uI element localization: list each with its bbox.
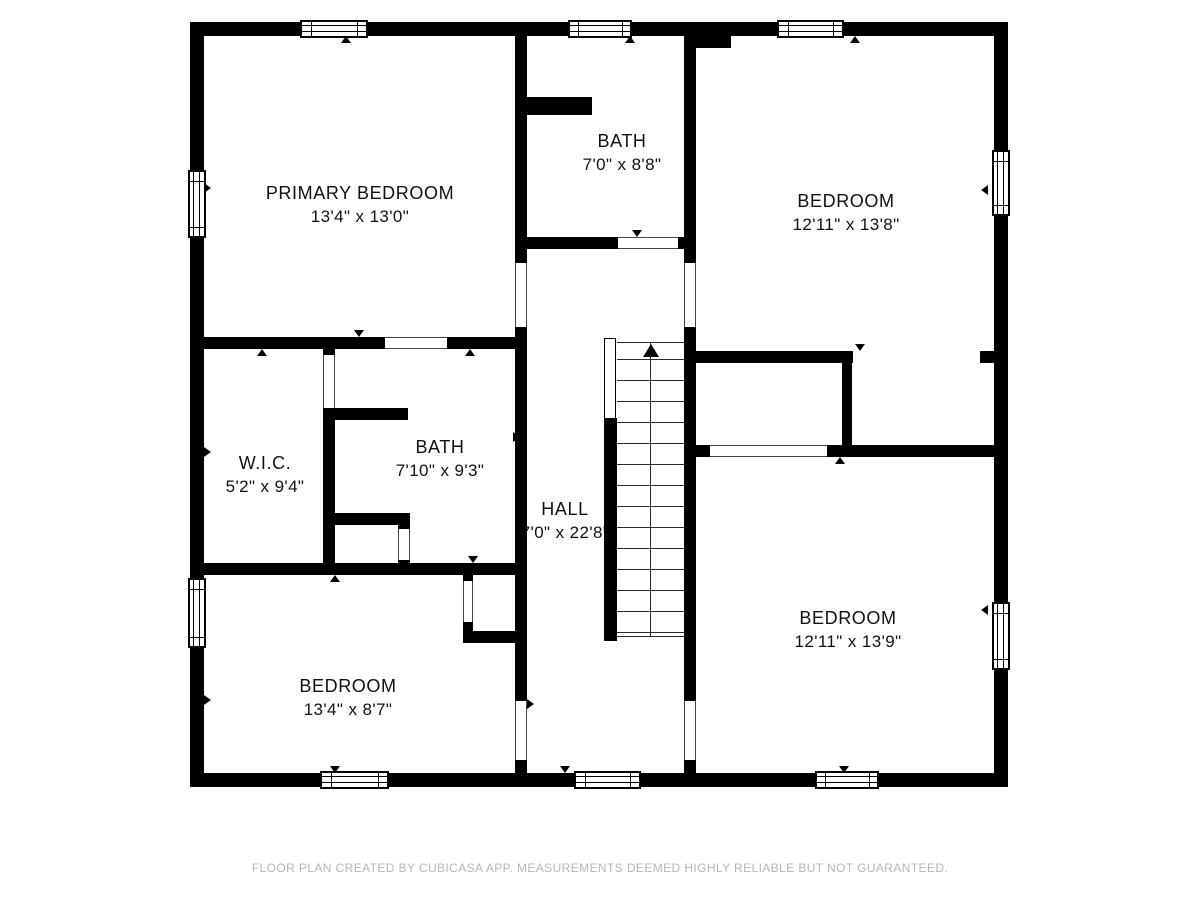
measure-marker-icon bbox=[257, 349, 267, 356]
window-pane-line bbox=[622, 22, 623, 36]
measure-marker-icon bbox=[981, 185, 988, 195]
room-dimensions: 7'0" x 8'8" bbox=[583, 155, 662, 175]
window-pane-line bbox=[994, 205, 1008, 206]
door-opening bbox=[515, 701, 527, 760]
wall bbox=[980, 351, 1008, 363]
room-dimensions: 12'11" x 13'9" bbox=[794, 632, 901, 652]
door-opening bbox=[684, 701, 696, 760]
door-opening bbox=[684, 263, 696, 327]
measure-marker-icon bbox=[330, 575, 340, 582]
room-dimensions: 7'10" x 9'3" bbox=[396, 461, 485, 481]
stairs-up-arrow-icon bbox=[643, 344, 659, 357]
door-opening bbox=[385, 337, 447, 349]
wall bbox=[515, 36, 527, 263]
room-name: BATH bbox=[583, 131, 662, 152]
window-pane-line bbox=[585, 773, 586, 787]
window-pane-line bbox=[833, 22, 834, 36]
wall bbox=[515, 237, 618, 249]
room-label-bedroom-bottom-right: BEDROOM 12'11" x 13'9" bbox=[794, 608, 901, 652]
window-pane-line bbox=[331, 773, 332, 787]
measure-marker-icon bbox=[204, 695, 211, 705]
wall bbox=[684, 445, 710, 457]
measure-marker-icon bbox=[354, 330, 364, 337]
measure-marker-icon bbox=[855, 344, 865, 351]
wall bbox=[515, 327, 527, 701]
measure-marker-icon bbox=[513, 432, 520, 442]
window bbox=[992, 150, 1010, 216]
room-dimensions: 13'4" x 8'7" bbox=[299, 700, 396, 720]
wall bbox=[190, 22, 204, 787]
wall bbox=[696, 36, 731, 48]
measure-marker-icon bbox=[465, 349, 475, 356]
window-pane-line bbox=[190, 637, 204, 638]
room-name: BEDROOM bbox=[794, 608, 901, 629]
wall bbox=[335, 408, 408, 420]
window-pane-line bbox=[788, 22, 789, 36]
door-opening bbox=[515, 263, 527, 327]
window-pane-line bbox=[994, 613, 1008, 614]
window-pane-line bbox=[825, 773, 826, 787]
window-pane-line bbox=[869, 773, 870, 787]
wall bbox=[994, 22, 1008, 787]
wall bbox=[684, 36, 696, 263]
measure-marker-icon bbox=[468, 556, 478, 563]
room-name: BEDROOM bbox=[792, 191, 899, 212]
measure-marker-icon bbox=[204, 447, 211, 457]
window-pane-line bbox=[311, 22, 312, 36]
wall bbox=[190, 563, 527, 575]
measure-marker-icon bbox=[341, 36, 351, 43]
wall bbox=[447, 337, 527, 349]
room-label-primary-bedroom: PRIMARY BEDROOM 13'4" x 13'0" bbox=[266, 183, 454, 227]
measure-marker-icon bbox=[835, 457, 845, 464]
room-dimensions: 13'4" x 13'0" bbox=[266, 207, 454, 227]
wall bbox=[684, 760, 696, 774]
floor-plan: PRIMARY BEDROOM 13'4" x 13'0" BATH 7'0" … bbox=[0, 0, 1200, 900]
footer-disclaimer: FLOOR PLAN CREATED BY CUBICASA APP. MEAS… bbox=[252, 861, 948, 875]
room-label-bedroom-top-right: BEDROOM 12'11" x 13'8" bbox=[792, 191, 899, 235]
measure-marker-icon bbox=[632, 230, 642, 237]
room-name: BEDROOM bbox=[299, 676, 396, 697]
door-opening bbox=[710, 445, 827, 457]
room-label-walk-in-closet: W.I.C. 5'2" x 9'4" bbox=[226, 453, 305, 497]
wall bbox=[463, 631, 515, 643]
room-dimensions: 5'2" x 9'4" bbox=[226, 477, 305, 497]
measure-marker-icon bbox=[981, 605, 988, 615]
room-label-bedroom-bottom-left: BEDROOM 13'4" x 8'7" bbox=[299, 676, 396, 720]
window-pane-line bbox=[817, 776, 877, 777]
wall bbox=[604, 418, 617, 641]
stair-rail bbox=[604, 338, 616, 419]
measure-marker-icon bbox=[326, 432, 333, 442]
room-name: PRIMARY BEDROOM bbox=[266, 183, 454, 204]
stair-center-line bbox=[650, 342, 651, 637]
measure-marker-icon bbox=[204, 183, 211, 193]
window-pane-line bbox=[630, 773, 631, 787]
measure-marker-icon bbox=[850, 36, 860, 43]
measure-marker-icon bbox=[330, 766, 340, 773]
room-label-hall: HALL 7'0" x 22'8" bbox=[521, 499, 610, 543]
window-pane-line bbox=[570, 31, 630, 32]
window-pane-line bbox=[357, 22, 358, 36]
measure-marker-icon bbox=[527, 699, 534, 709]
room-name: HALL bbox=[521, 499, 610, 520]
window-pane-line bbox=[190, 589, 204, 590]
measure-marker-icon bbox=[688, 418, 695, 428]
window-pane-line bbox=[378, 773, 379, 787]
measure-marker-icon bbox=[560, 766, 570, 773]
door-opening bbox=[618, 237, 678, 249]
wall bbox=[678, 237, 696, 249]
window-pane-line bbox=[570, 25, 630, 26]
window-pane-line bbox=[190, 181, 204, 182]
wall bbox=[515, 760, 527, 774]
room-dimensions: 7'0" x 22'8" bbox=[521, 523, 610, 543]
window-pane-line bbox=[994, 161, 1008, 162]
wall bbox=[398, 513, 410, 529]
door-opening bbox=[463, 581, 473, 622]
door-opening bbox=[398, 529, 410, 560]
room-name: BATH bbox=[396, 437, 485, 458]
measure-marker-icon bbox=[625, 36, 635, 43]
room-label-bath-upper: BATH 7'0" x 8'8" bbox=[583, 131, 662, 175]
window-pane-line bbox=[578, 22, 579, 36]
room-name: W.I.C. bbox=[226, 453, 305, 474]
room-dimensions: 12'11" x 13'8" bbox=[792, 215, 899, 235]
window-pane-line bbox=[190, 227, 204, 228]
wall bbox=[684, 351, 853, 363]
window-pane-line bbox=[994, 659, 1008, 660]
wall bbox=[684, 327, 696, 701]
measure-marker-icon bbox=[839, 766, 849, 773]
wall bbox=[827, 445, 1008, 457]
window-pane-line bbox=[817, 782, 877, 783]
wall bbox=[527, 97, 592, 115]
door-opening bbox=[323, 355, 335, 408]
wall bbox=[190, 337, 385, 349]
room-label-bath-middle: BATH 7'10" x 9'3" bbox=[396, 437, 485, 481]
wall bbox=[842, 363, 852, 448]
